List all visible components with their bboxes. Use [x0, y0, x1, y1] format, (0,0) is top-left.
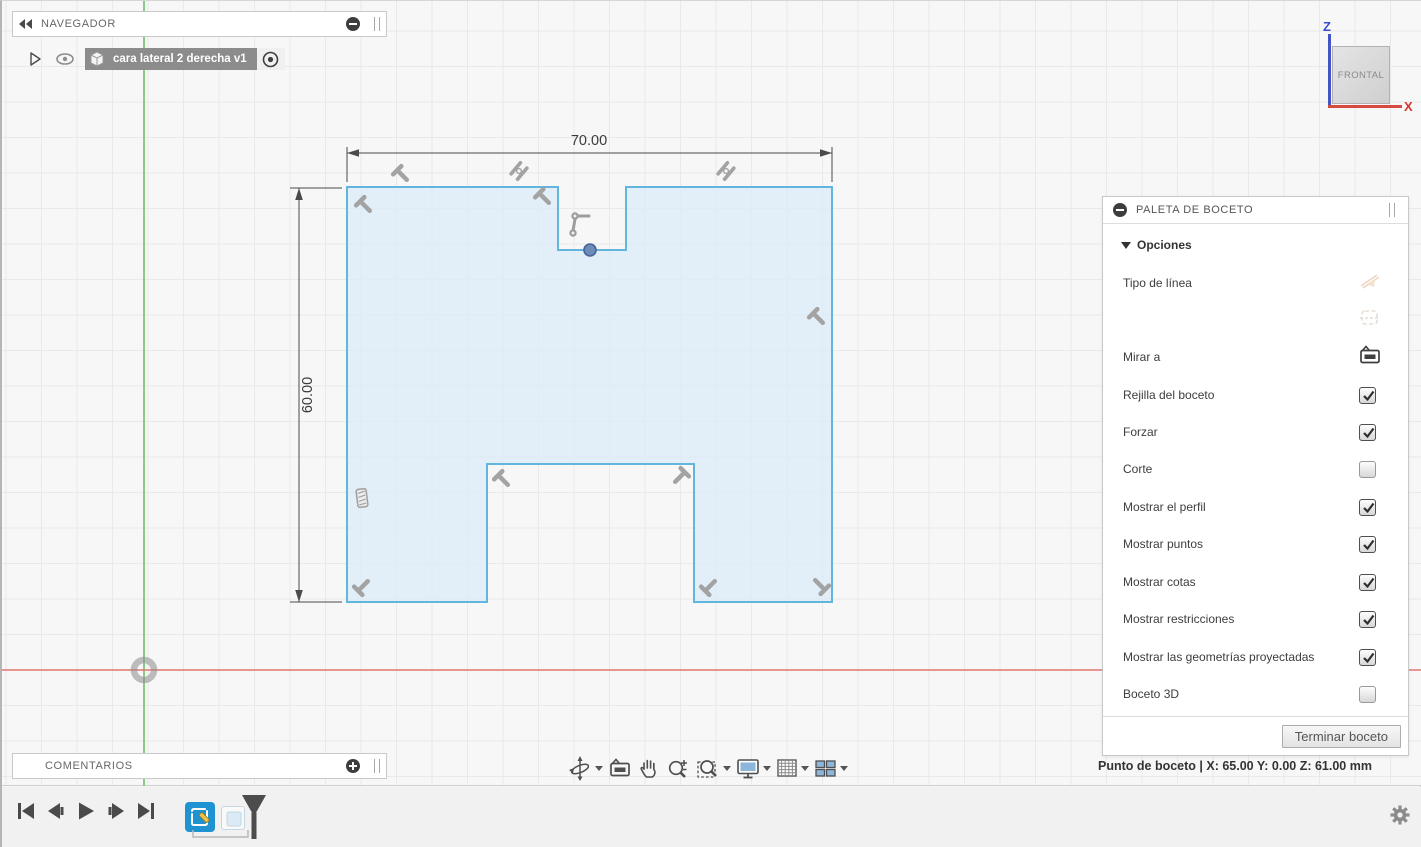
timeline-marker[interactable] [240, 793, 268, 841]
collapse-left-icon[interactable] [19, 19, 33, 29]
sketch-3d-checkbox[interactable] [1359, 686, 1376, 703]
panel-grip[interactable] [374, 759, 380, 773]
projected-line-icon[interactable] [1359, 308, 1381, 333]
look-at-button[interactable] [608, 757, 632, 779]
row-line-type: Tipo de línea [1103, 274, 1408, 292]
dimension-width[interactable]: 70.00 [347, 133, 832, 182]
dropdown-caret[interactable] [763, 766, 771, 771]
slice-label: Corte [1123, 462, 1152, 476]
settings-gear-icon[interactable] [1389, 804, 1411, 826]
browser-item-text: cara lateral 2 derecha v1 [113, 53, 247, 65]
symmetry-icon [716, 160, 737, 182]
show-dimensions-label: Mostrar cotas [1123, 575, 1196, 589]
row-3d-sketch: Boceto 3D [1103, 685, 1408, 703]
finish-sketch-button[interactable]: Terminar boceto [1282, 725, 1401, 748]
dropdown-caret[interactable] [801, 766, 809, 771]
expand-arrow-icon[interactable] [30, 52, 41, 66]
construction-line-icon[interactable] [1359, 272, 1381, 295]
row-show-constraints: Mostrar restricciones [1103, 610, 1408, 628]
dropdown-caret[interactable] [723, 766, 731, 771]
symmetry-icon [509, 160, 530, 182]
z-axis-line [1328, 34, 1331, 107]
step-forward-button[interactable] [106, 801, 126, 821]
row-show-dimensions: Mostrar cotas [1103, 573, 1408, 591]
x-axis-label: X [1404, 99, 1413, 114]
look-at-label: Mirar a [1123, 350, 1160, 364]
show-projected-checkbox[interactable] [1359, 649, 1376, 666]
navigator-panel-header[interactable]: NAVEGADOR [12, 11, 387, 37]
viewports-button[interactable] [814, 758, 848, 779]
show-projected-label: Mostrar las geometrías proyectadas [1123, 650, 1314, 664]
dim-width-text: 70.00 [571, 133, 607, 149]
show-dimensions-checkbox[interactable] [1359, 574, 1376, 591]
show-profile-checkbox[interactable] [1359, 499, 1376, 516]
perpendicular-icon [390, 163, 414, 187]
go-to-start-button[interactable] [16, 801, 36, 821]
palette-header[interactable]: PALETA DE BOCETO [1103, 197, 1408, 224]
collapse-panel-icon[interactable] [346, 17, 360, 31]
perpendicular-icon [668, 465, 692, 489]
activate-component-radio[interactable] [257, 48, 285, 70]
visibility-eye-icon[interactable] [55, 52, 75, 66]
grid-display-button[interactable] [776, 757, 809, 779]
sketch-point-status: Punto de boceto | X: 65.00 Y: 0.00 Z: 61… [1098, 759, 1420, 773]
dimension-height[interactable]: 60.00 [290, 188, 342, 602]
palette-grip[interactable] [1389, 203, 1395, 217]
dropdown-caret[interactable] [595, 766, 603, 771]
zoom-window-icon [696, 756, 721, 780]
row-look-at: Mirar a [1103, 348, 1408, 366]
row-show-profile: Mostrar el perfil [1103, 498, 1408, 516]
show-points-label: Mostrar puntos [1123, 537, 1203, 551]
pan-button[interactable] [637, 756, 661, 780]
sketch-point[interactable] [584, 244, 596, 256]
display-settings-icon [736, 757, 761, 780]
show-profile-label: Mostrar el perfil [1123, 500, 1206, 514]
slice-checkbox[interactable] [1359, 461, 1376, 478]
look-at-icon[interactable] [1359, 345, 1381, 370]
snap-label: Forzar [1123, 425, 1158, 439]
options-label: Opciones [1137, 238, 1192, 252]
show-points-checkbox[interactable] [1359, 536, 1376, 553]
row-show-projected: Mostrar las geometrías proyectadas [1103, 648, 1408, 666]
radio-target-icon [262, 51, 279, 68]
step-back-button[interactable] [46, 801, 66, 821]
row-snap: Forzar [1103, 423, 1408, 441]
row-show-points: Mostrar puntos [1103, 535, 1408, 553]
timeline-playback-controls [16, 801, 156, 821]
display-settings-button[interactable] [736, 757, 771, 780]
x-axis-line [1328, 105, 1402, 108]
orbit-button[interactable] [568, 755, 603, 781]
fix-constraint-icon [570, 213, 589, 235]
equal-constraint-icon [356, 488, 368, 507]
palette-title: PALETA DE BOCETO [1136, 204, 1253, 216]
comments-title: COMENTARIOS [45, 760, 133, 772]
dropdown-caret[interactable] [840, 766, 848, 771]
chevron-down-icon [1121, 242, 1131, 249]
grid-icon [776, 757, 799, 779]
palette-divider [1103, 716, 1408, 717]
sketch-feature-icon [185, 802, 215, 832]
collapse-palette-icon[interactable] [1113, 203, 1127, 217]
timeline-bar [2, 787, 1421, 847]
zoom-window-button[interactable] [696, 756, 731, 780]
go-to-end-button[interactable] [136, 801, 156, 821]
view-cube[interactable]: FRONTAL Z X [1302, 11, 1421, 121]
sketch-3d-label: Boceto 3D [1123, 687, 1179, 701]
look-at-icon [608, 757, 632, 779]
component-cube-icon [87, 49, 107, 69]
row-sketch-grid: Rejilla del boceto [1103, 386, 1408, 404]
zoom-button[interactable] [666, 757, 691, 780]
dim-height-text: 60.00 [300, 377, 316, 413]
timeline-sketch-feature[interactable] [185, 802, 215, 832]
pan-hand-icon [637, 756, 661, 780]
orbit-icon [568, 755, 593, 781]
z-axis-label: Z [1323, 19, 1331, 34]
panel-grip[interactable] [374, 17, 380, 31]
navigator-title: NAVEGADOR [41, 18, 116, 30]
play-button[interactable] [76, 801, 96, 821]
sketch-grid-checkbox[interactable] [1359, 387, 1376, 404]
line-type-label: Tipo de línea [1123, 276, 1192, 290]
navigation-toolbar [568, 754, 848, 782]
row-slice: Corte [1103, 460, 1408, 478]
viewcube-face-label: FRONTAL [1338, 70, 1384, 81]
browser-item-row[interactable]: cara lateral 2 derecha v1 [30, 48, 285, 70]
viewports-icon [814, 758, 838, 779]
show-constraints-label: Mostrar restricciones [1123, 612, 1234, 626]
sketch-grid-label: Rejilla del boceto [1123, 388, 1214, 402]
browser-item-label[interactable]: cara lateral 2 derecha v1 [85, 48, 257, 70]
zoom-icon [666, 757, 691, 780]
show-constraints-checkbox[interactable] [1359, 611, 1376, 628]
comments-panel-header[interactable]: COMENTARIOS [12, 753, 387, 779]
row-line-type-2 [1103, 311, 1408, 329]
sketch-palette: PALETA DE BOCETO Opciones Tipo de línea [1102, 196, 1409, 756]
perpendicular-icon [491, 468, 515, 492]
options-section-header[interactable]: Opciones [1103, 236, 1408, 254]
add-comment-icon[interactable] [346, 759, 360, 773]
viewcube-front-face[interactable]: FRONTAL [1332, 46, 1390, 104]
snap-checkbox[interactable] [1359, 424, 1376, 441]
fusion-window: 70.00 60.00 [0, 0, 1421, 847]
